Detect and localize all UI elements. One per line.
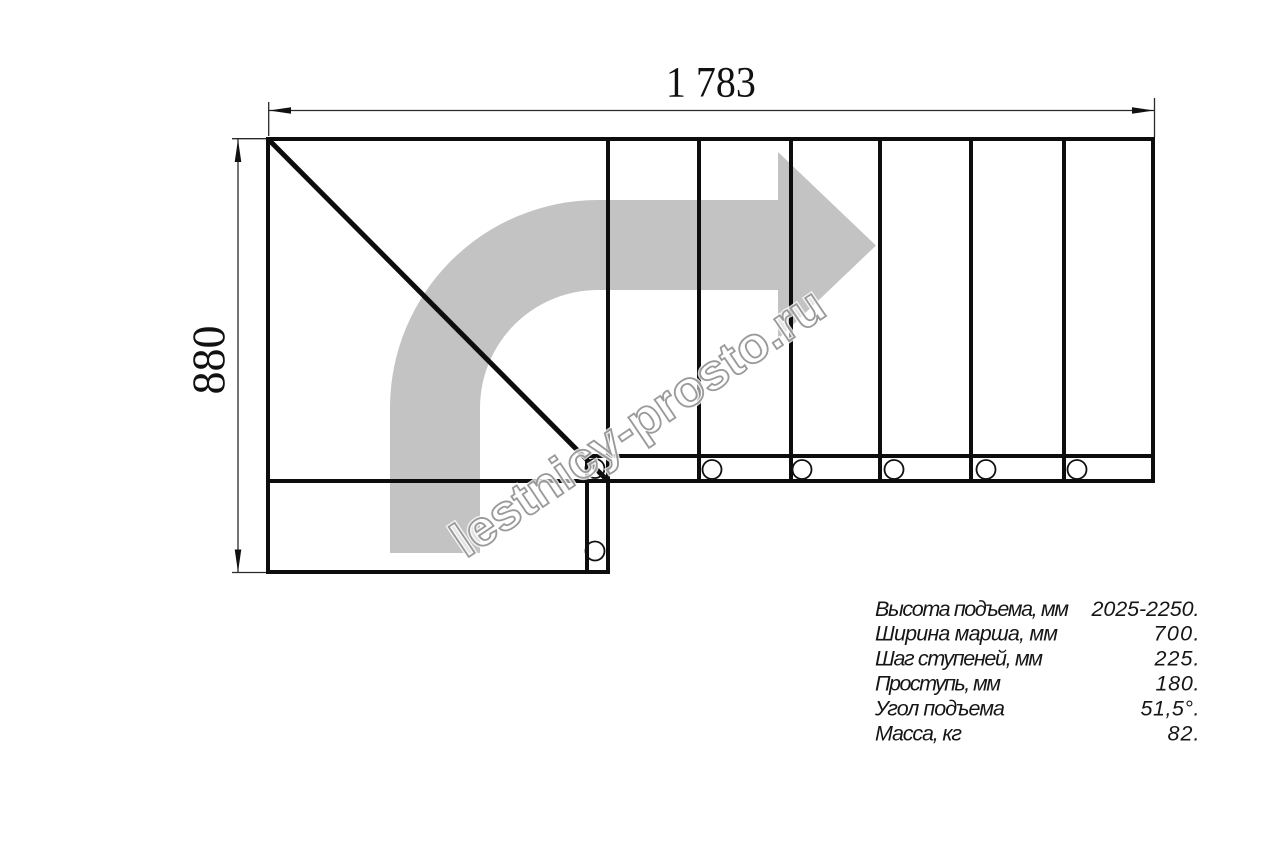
svg-text:Высота подъема, мм: Высота подъема, мм [875,597,1069,621]
svg-text:Ширина марша, мм: Ширина марша, мм [875,622,1058,646]
svg-text:2025-2250.: 2025-2250. [1091,597,1200,621]
svg-text:180.: 180. [1156,672,1200,696]
svg-text:Проступь, мм: Проступь, мм [875,672,1001,696]
svg-text:82.: 82. [1168,721,1200,745]
svg-text:1 783: 1 783 [666,59,756,107]
svg-text:Угол подъема: Угол подъема [874,696,1005,720]
svg-text:Масса, кг: Масса, кг [875,721,962,745]
svg-text:700.: 700. [1154,622,1200,646]
svg-text:225.: 225. [1154,647,1200,671]
svg-text:Шаг ступеней, мм: Шаг ступеней, мм [875,647,1043,671]
svg-text:880: 880 [184,326,235,395]
svg-text:51,5°.: 51,5°. [1141,696,1200,720]
